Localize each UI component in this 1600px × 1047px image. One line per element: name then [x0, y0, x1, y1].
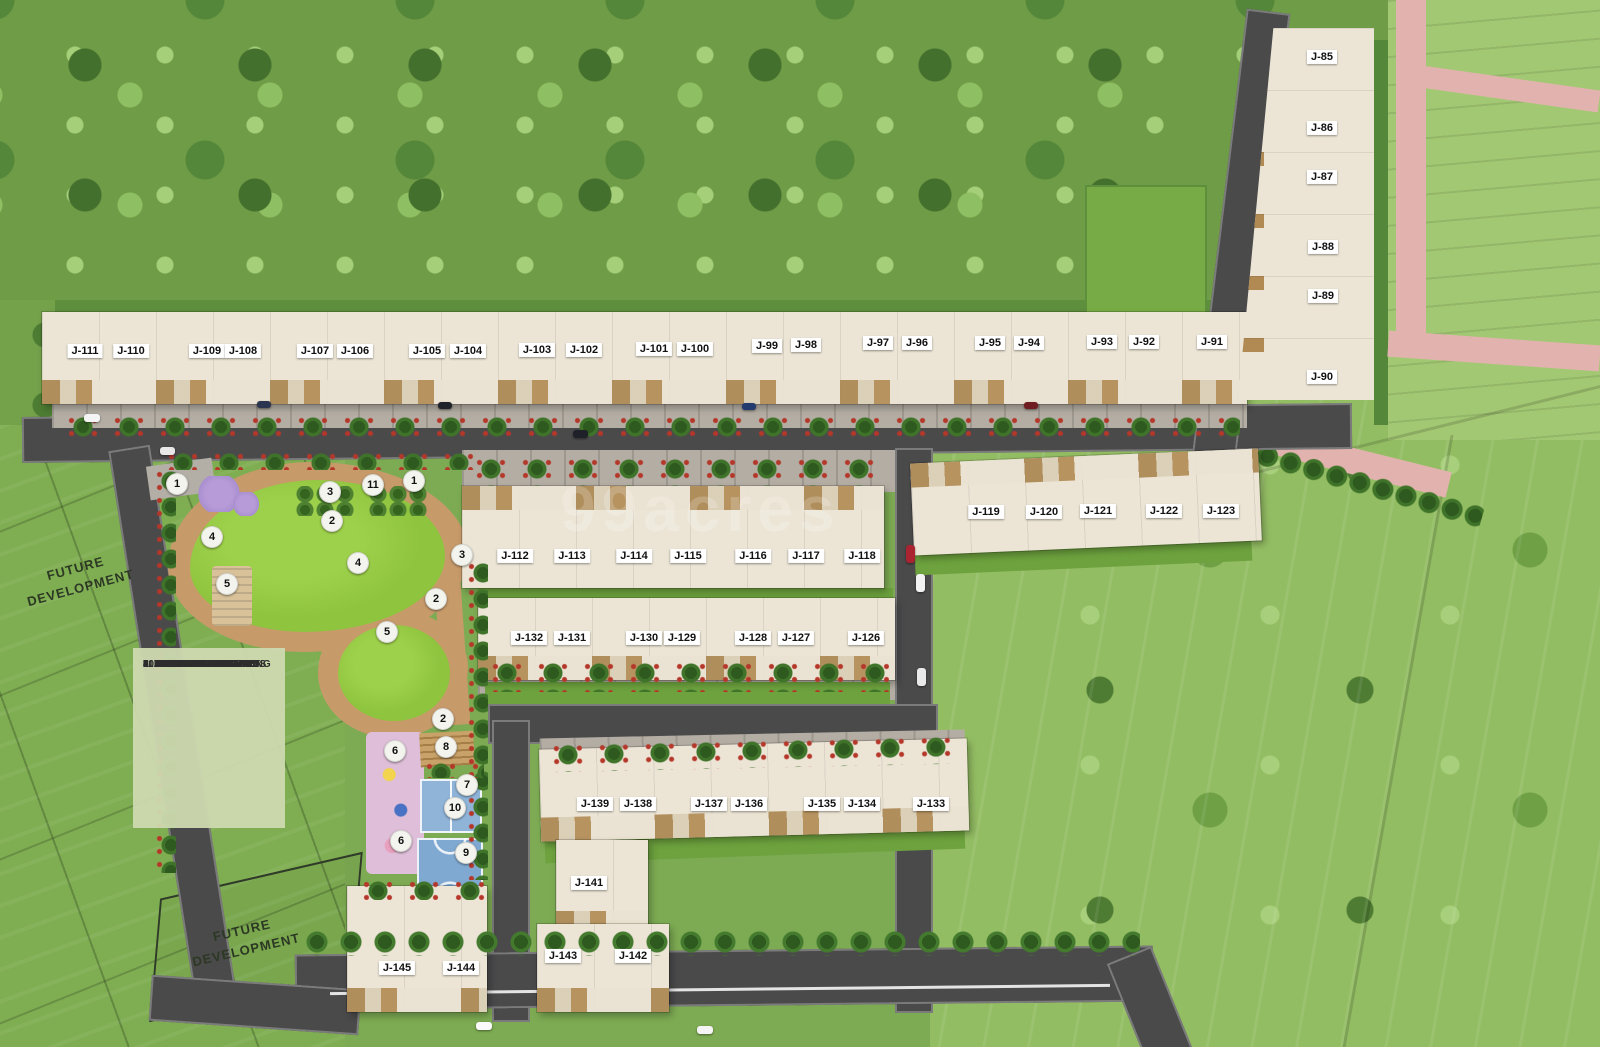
green-court	[1085, 185, 1207, 333]
forest-area	[0, 0, 1420, 338]
park-border-trees	[355, 878, 490, 900]
building-j141	[556, 840, 648, 935]
car	[697, 1026, 713, 1034]
watermark: 99acres	[560, 472, 980, 546]
outdoor-gym-area	[212, 566, 252, 626]
park-border-trees	[460, 560, 488, 880]
car	[1024, 402, 1038, 409]
car	[906, 545, 915, 563]
car	[917, 668, 926, 686]
car	[573, 430, 588, 438]
car	[438, 402, 452, 409]
trellis-with-seating	[368, 486, 428, 516]
site-plan: 99acres J-111J-110J-109J-108J-107J-106J-…	[0, 0, 1600, 1047]
kids-play-area	[366, 732, 424, 874]
shrub-row	[484, 660, 889, 692]
central-lawn	[338, 625, 450, 721]
car	[84, 414, 100, 422]
building-row-north	[42, 312, 1247, 404]
car	[916, 574, 925, 592]
legend: 1. ENTRANCE PLAZA2. JOGGING TRACK3. TREL…	[133, 648, 285, 828]
flowering-tree	[232, 492, 260, 516]
trellis-with-seating	[295, 486, 355, 516]
car	[476, 1022, 492, 1030]
park-border-trees	[160, 450, 480, 470]
shrub-row	[300, 930, 1140, 956]
car	[257, 401, 271, 408]
shrub-row	[60, 414, 1240, 440]
pink-pathway	[1396, 0, 1426, 352]
legend-item: 11. PATHWAY	[143, 657, 207, 672]
car	[160, 447, 175, 455]
park-border-trees	[418, 760, 484, 778]
car	[742, 403, 756, 410]
